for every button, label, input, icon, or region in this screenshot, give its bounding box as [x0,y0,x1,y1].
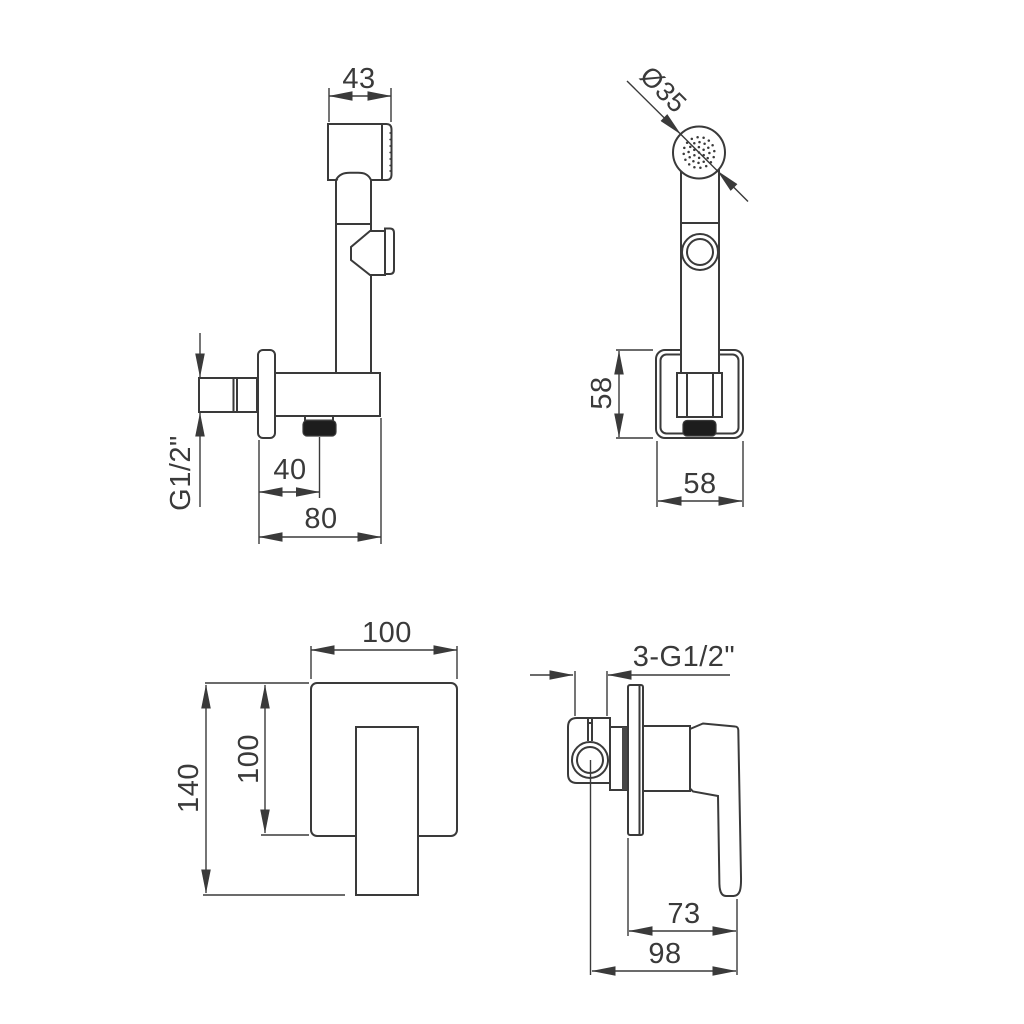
spray-nozzle-dot [702,161,705,164]
dim-label-hose-offset: 40 [273,454,306,486]
spray-nozzle-dot [683,147,686,150]
technical-drawing-canvas: 43 G1/2" 40 80 [0,0,1024,1024]
dim-label-inlet-thread: G1/2" [165,435,197,511]
mixer-valve-side-view: 3-G1/2" 73 98 [530,641,741,975]
spray-nozzle-dot [691,138,694,141]
hose-connector-block [677,373,722,417]
dim-label-head-width: 43 [342,63,375,95]
spray-nozzle-dot [693,166,696,169]
dim-label-connection-threads: 3-G1/2" [633,641,735,673]
spray-nozzle-dot [703,143,706,146]
dim-plate-width: 100 [311,617,457,679]
dim-label-holder-depth: 80 [304,503,337,535]
dim-label-plate-height: 100 [233,734,265,784]
hand-shower-side-view: 43 G1/2" 40 80 [165,63,394,544]
dim-escutcheon-width: 58 [657,441,743,507]
spray-nozzle-dot [696,136,699,139]
wall-plate-side [628,685,643,835]
spray-nozzle-dot [713,150,716,153]
cartridge-housing [643,726,690,791]
spray-nozzle-dot [687,151,690,154]
spray-nozzle-dot [698,141,701,144]
dim-label-handle-projection: 73 [667,898,700,930]
lever-handle-side [690,724,741,897]
dim-plate-height: 100 [233,685,309,835]
dim-label-plate-width: 100 [362,617,412,649]
shower-head-body [328,124,382,180]
spray-nozzle-dot [712,156,715,159]
dim-label-spray-diameter: Ø35 [634,60,692,118]
lever-handle-front [356,727,418,895]
trigger-cap [385,229,394,275]
spray-nozzle-dot [697,162,700,165]
holder-body [275,373,380,416]
diameter-leader-lower [717,171,748,202]
spray-nozzle-dot [698,146,701,149]
spray-nozzle-dot [688,156,691,159]
hose-nut [683,421,716,437]
mixer-trim-front-view: 100 100 140 [173,617,457,895]
hand-shower-front-view: Ø35 58 58 [586,60,748,507]
hose-outlet-nut [303,421,336,437]
dim-label-escutcheon-width: 58 [683,468,716,500]
spray-nozzle-dot [705,165,708,168]
spray-nozzle-dot [706,157,709,160]
spray-nozzle-dot [707,147,710,150]
spray-nozzle-dot [693,142,696,145]
spray-nozzle-dot [708,152,711,155]
trigger-cone [351,231,385,275]
dim-label-overall-height: 140 [173,763,205,813]
wall-escutcheon-side [258,350,275,438]
spray-nozzle-dot [684,158,687,161]
dim-escutcheon-height: 58 [586,350,653,438]
spray-nozzle-dot [692,160,695,163]
inlet-pipe [199,378,257,412]
spray-nozzle-dot [702,137,705,140]
drawing-sheet: 43 G1/2" 40 80 [0,0,1024,1024]
spray-nozzle-dot [693,154,696,157]
spray-nozzle-dot [698,157,701,160]
dim-head-width: 43 [329,63,391,122]
spray-nozzle-dot [682,153,685,156]
dim-inlet-thread: G1/2" [165,333,200,511]
dim-label-overall-depth: 98 [648,938,681,970]
spray-nozzle-dot [708,139,711,142]
spray-nozzle-dot [688,163,691,166]
spray-nozzle-dot [702,148,705,151]
dim-label-escutcheon-height: 58 [586,376,618,409]
spray-nozzle-dot [711,144,714,147]
spray-nozzle-dot [699,167,702,170]
spray-nozzle-dot [689,146,692,149]
hose-outlet-collar [305,416,333,421]
